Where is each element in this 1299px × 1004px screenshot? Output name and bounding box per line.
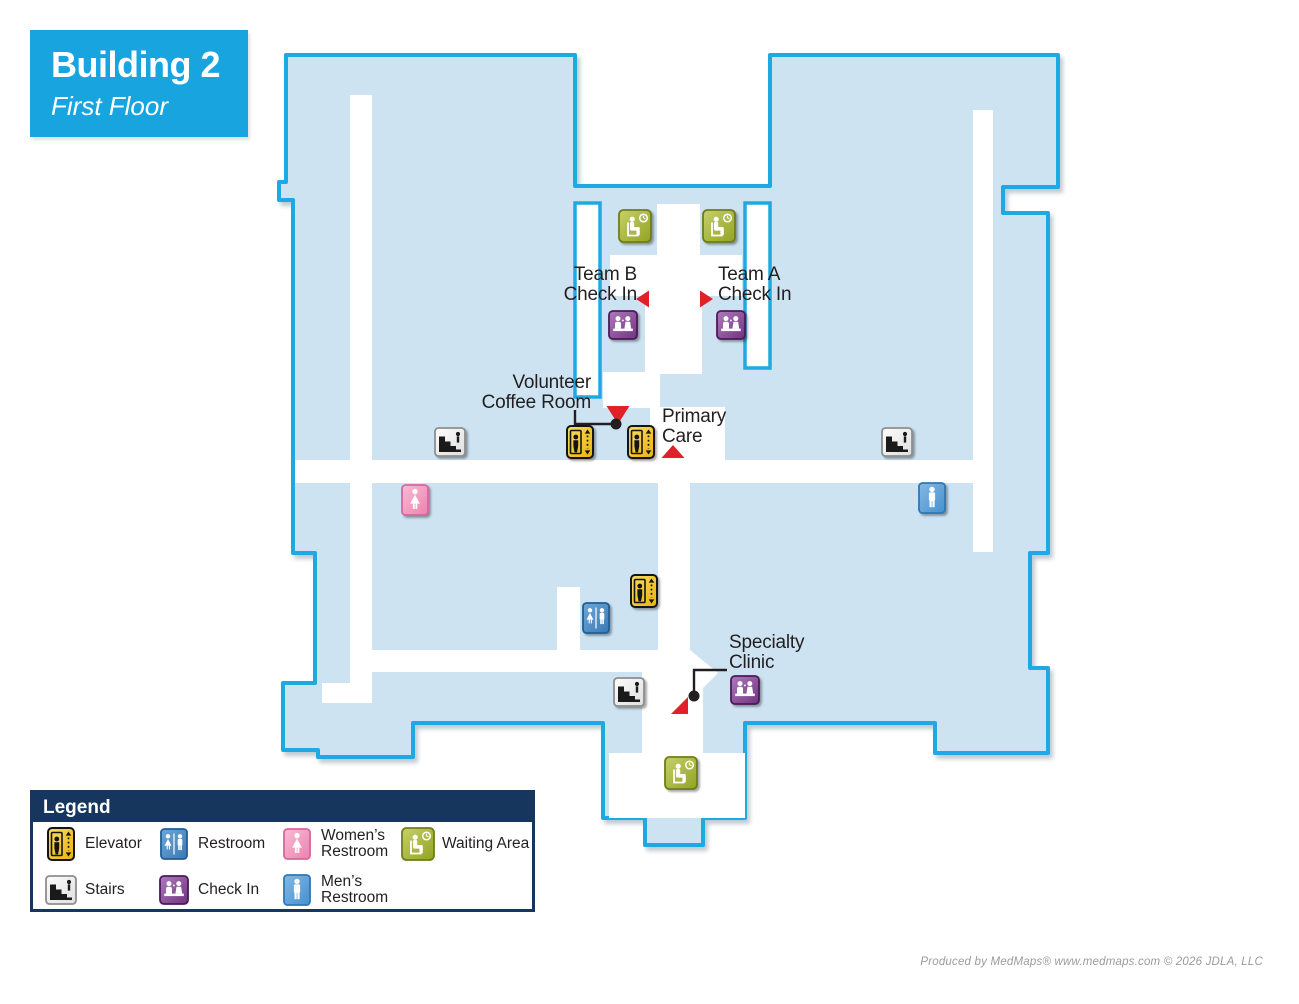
check-in-icon (157, 873, 191, 907)
womens-icon (402, 485, 428, 515)
leader-dot (611, 419, 622, 430)
stairs-icon (44, 873, 78, 907)
stairs-icon (882, 428, 912, 456)
mens-icon (919, 483, 945, 513)
restroom-icon (583, 603, 609, 633)
stairs-icon (614, 678, 644, 706)
legend-item-elevator: Elevator (44, 827, 142, 861)
restroom-icon (161, 829, 187, 859)
label-team-b-check-in: Team B Check In (564, 265, 637, 305)
legend-label: Elevator (85, 836, 142, 853)
waiting-icon (402, 828, 434, 860)
elevator-icon (631, 575, 657, 607)
building-title: Building 2 (51, 44, 248, 86)
label-specialty-clinic: Specialty Clinic (729, 633, 804, 673)
label-primary-care: Primary Care (662, 407, 726, 447)
legend: Legend Elevator Restroom Women’s Restroo… (30, 790, 535, 912)
legend-item-stairs: Stairs (44, 873, 125, 907)
waiting-icon (619, 210, 651, 242)
floor-subtitle: First Floor (51, 91, 248, 122)
legend-label: Restroom (198, 836, 265, 853)
elevator-icon (567, 426, 593, 458)
elevator-icon (628, 426, 654, 458)
checkin-icon (717, 311, 745, 339)
elevator-icon (48, 828, 74, 860)
checkin-icon (731, 676, 759, 704)
legend-item-mens-restroom: Men’s Restroom (280, 873, 388, 907)
stairs-icon (435, 428, 465, 456)
womens-icon (284, 829, 310, 859)
credits-text: Produced by MedMaps® www.medmaps.com © 2… (920, 956, 1263, 968)
legend-item-womens-restroom: Women’s Restroom (280, 827, 388, 861)
waiting-icon (665, 757, 697, 789)
legend-item-waiting-area: Waiting Area (401, 827, 529, 861)
title-box: Building 2 First Floor (30, 30, 248, 137)
legend-label: Waiting Area (442, 836, 529, 853)
checkin-icon (609, 311, 637, 339)
legend-label: Stairs (85, 882, 125, 899)
legend-label: Women’s Restroom (321, 828, 388, 861)
mens-icon (284, 875, 310, 905)
womens-restroom-icon (280, 827, 314, 861)
waiting-icon (703, 210, 735, 242)
label-team-a-check-in: Team A Check In (718, 265, 791, 305)
floor-plan-page: Building 2 First Floor Team B Check In T… (0, 0, 1299, 1004)
checkin-icon (160, 876, 188, 904)
stairs-icon (46, 876, 76, 904)
mens-restroom-icon (280, 873, 314, 907)
legend-label: Check In (198, 882, 259, 899)
restroom-icon (157, 827, 191, 861)
legend-label: Men’s Restroom (321, 874, 388, 907)
leader-dot (689, 691, 700, 702)
legend-item-check-in: Check In (157, 873, 259, 907)
waiting-area-icon (401, 827, 435, 861)
label-volunteer-coffee-room: Volunteer Coffee Room (482, 373, 591, 413)
legend-header: Legend (33, 793, 532, 822)
legend-item-restroom: Restroom (157, 827, 265, 861)
elevator-icon (44, 827, 78, 861)
